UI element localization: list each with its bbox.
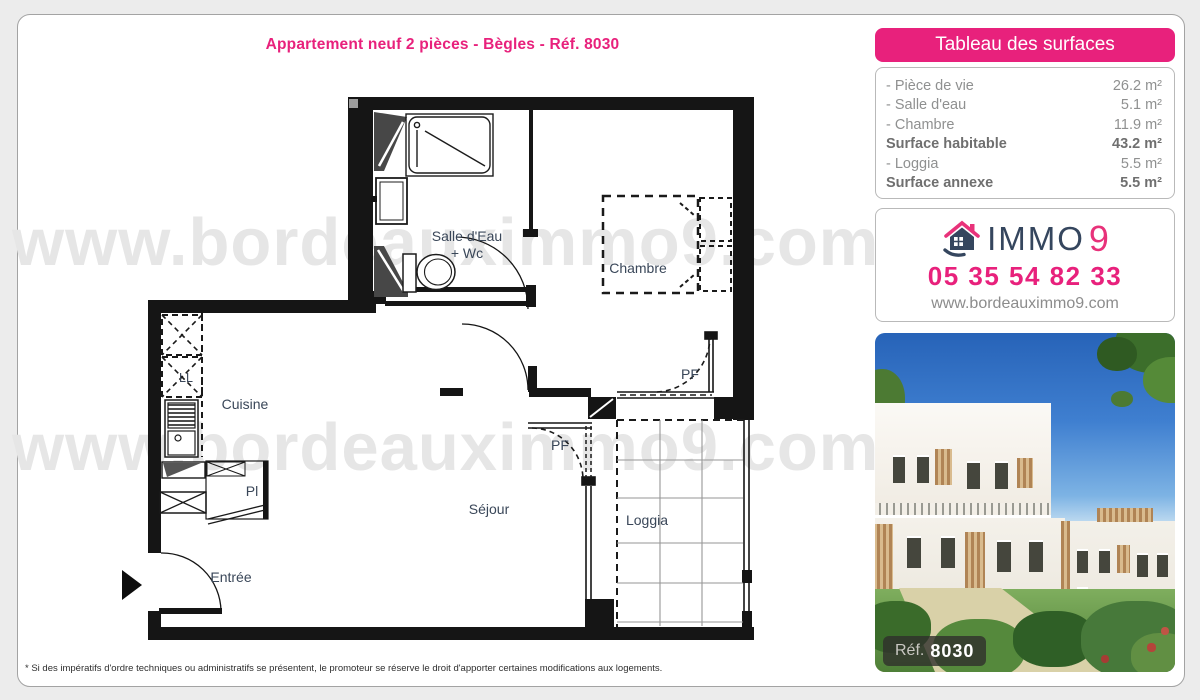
table-row: - Loggia 5.5 m² <box>876 154 1174 174</box>
floor-plan: Salle d'Eau + Wc Chambre Cuisine LL Pl S… <box>0 0 870 700</box>
table-row: - Salle d'eau 5.1 m² <box>876 96 1174 116</box>
building-left-top <box>875 403 1051 520</box>
brand-immo: IMMO <box>987 220 1085 258</box>
row-value: 43.2 m² <box>1112 136 1162 152</box>
flowers <box>1161 627 1169 635</box>
label-entree: Entrée <box>210 569 251 585</box>
label-pl: Pl <box>246 483 258 499</box>
row-label: Surface annexe <box>886 175 993 191</box>
row-label: Surface habitable <box>886 136 1007 152</box>
bush <box>1131 633 1175 672</box>
brand-nine: 9 <box>1089 218 1109 260</box>
label-cuisine: Cuisine <box>222 396 269 412</box>
agency-card: IMMO 9 05 35 54 82 33 www.bordeauximmo9.… <box>875 208 1175 322</box>
table-row: - Chambre 11.9 m² <box>876 115 1174 135</box>
table-row-total: Surface habitable 43.2 m² <box>876 135 1174 155</box>
label-sejour: Séjour <box>469 501 510 517</box>
house-icon <box>941 219 983 259</box>
flowers <box>1101 655 1109 663</box>
closet-icon <box>206 461 268 524</box>
listing-sheet: www.bordeauximmo9.com www.bordeauximmo9.… <box>0 0 1200 700</box>
shower-icon <box>406 114 493 176</box>
walls <box>148 97 754 640</box>
row-label: - Pièce de vie <box>886 78 974 94</box>
label-salle-deau-wc: + Wc <box>451 245 483 261</box>
washbasin-icon <box>371 178 407 224</box>
row-value: 5.1 m² <box>1121 97 1162 113</box>
row-label: - Loggia <box>886 156 938 172</box>
surfaces-header: Tableau des surfaces <box>875 28 1175 62</box>
kitchen-icons <box>160 315 206 513</box>
property-photo: Réf. 8030 <box>875 333 1175 672</box>
ref-label: Réf. <box>895 642 924 660</box>
bed-icon <box>603 196 731 293</box>
leaves-icon <box>1097 337 1137 371</box>
label-loggia: Loggia <box>626 512 668 528</box>
label-pf-right: PF <box>681 366 699 382</box>
row-value: 5.5 m² <box>1120 175 1162 191</box>
label-ll: LL <box>179 371 193 385</box>
bathroom-icons <box>371 112 493 297</box>
row-label: - Chambre <box>886 117 955 133</box>
agency-logo: IMMO 9 <box>876 219 1174 259</box>
flowers <box>1147 643 1156 652</box>
label-salle-deau: Salle d'Eau <box>432 228 502 244</box>
table-row-total: Surface annexe 5.5 m² <box>876 174 1174 194</box>
website-link[interactable]: www.bordeauximmo9.com <box>876 295 1174 313</box>
leaves-icon <box>1111 391 1133 407</box>
label-chambre: Chambre <box>609 260 667 276</box>
ref-number: 8030 <box>930 641 974 662</box>
dashed-elements <box>202 313 748 627</box>
row-value: 5.5 m² <box>1121 156 1162 172</box>
phone-number[interactable]: 05 35 54 82 33 <box>876 261 1174 292</box>
footnote: * Si des impératifs d'ordre techniques o… <box>25 663 662 674</box>
row-value: 11.9 m² <box>1114 117 1162 133</box>
toilet-icon <box>403 254 455 292</box>
row-value: 26.2 m² <box>1113 78 1162 94</box>
table-row: - Pièce de vie 26.2 m² <box>876 76 1174 96</box>
surfaces-table: - Pièce de vie 26.2 m² - Salle d'eau 5.1… <box>875 67 1175 199</box>
row-label: - Salle d'eau <box>886 97 966 113</box>
entrance-arrow-icon <box>122 570 142 600</box>
reference-badge: Réf. 8030 <box>883 636 986 666</box>
label-pf-left: PF <box>551 437 569 453</box>
